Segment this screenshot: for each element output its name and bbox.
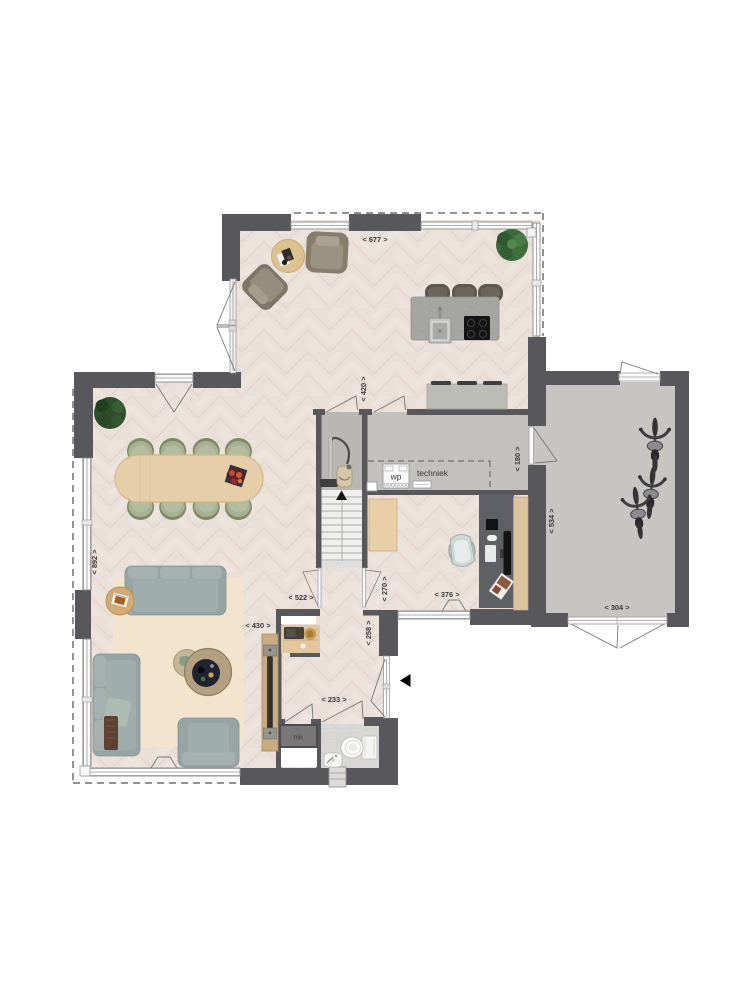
svg-text:mk: mk — [293, 735, 303, 742]
svg-text:< 420 >: < 420 > — [359, 376, 368, 402]
svg-text:< 180 >: < 180 > — [513, 446, 522, 472]
svg-text:< 376 >: < 376 > — [434, 590, 460, 599]
svg-text:< 304 >: < 304 > — [604, 603, 630, 612]
svg-text:< 677 >: < 677 > — [362, 235, 388, 244]
svg-text:< 430 >: < 430 > — [245, 621, 271, 630]
svg-text:< 270 >: < 270 > — [380, 576, 389, 602]
svg-text:< 522 >: < 522 > — [288, 593, 314, 602]
svg-text:< 892 >: < 892 > — [90, 549, 99, 575]
svg-text:< 534 >: < 534 > — [547, 508, 556, 534]
svg-text:wp: wp — [390, 472, 402, 482]
svg-text:techniek: techniek — [417, 468, 449, 478]
svg-text:< 258 >: < 258 > — [364, 620, 373, 646]
svg-text:< 233 >: < 233 > — [321, 695, 347, 704]
